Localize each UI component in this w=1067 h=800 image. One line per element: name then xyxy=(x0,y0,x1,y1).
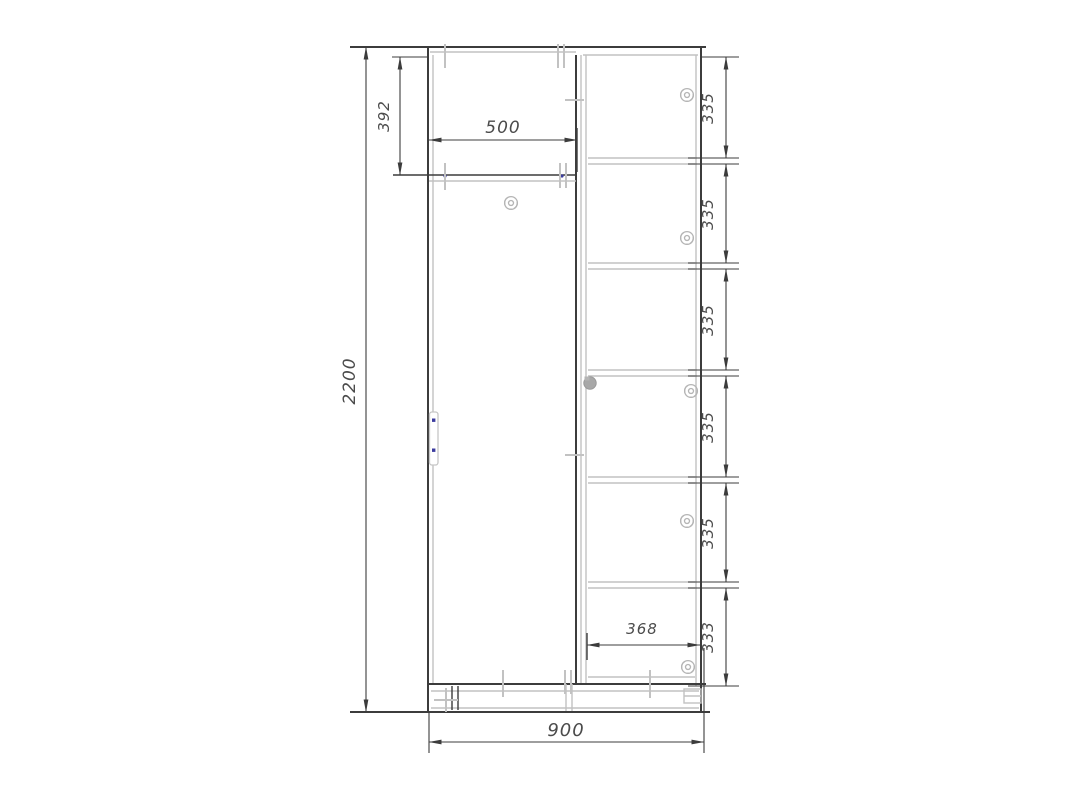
fastener-icons xyxy=(505,89,698,674)
base-plinth xyxy=(350,684,710,712)
cam-lock-fastener-icon xyxy=(681,515,694,528)
dim-label-section-1: 335 xyxy=(699,92,717,124)
drawing-canvas: 2200 392 500 335 335 335 335 335 333 xyxy=(0,0,1067,800)
dim-right-inner-width: 368 xyxy=(587,620,700,660)
dim-label-top-section: 392 xyxy=(375,100,393,132)
shelf-knob-icon xyxy=(584,377,596,390)
shelf-lines xyxy=(588,158,695,677)
dim-label-right-inner-width: 368 xyxy=(626,620,658,638)
dim-overall-height: 2200 xyxy=(340,47,366,712)
cabinet-frame xyxy=(350,47,706,712)
cam-lock-fastener-icon xyxy=(681,232,694,245)
handle-screw-dot xyxy=(432,419,435,422)
left-door xyxy=(393,174,577,465)
dim-left-door-width: 500 xyxy=(429,118,577,172)
dim-label-overall-width: 900 xyxy=(547,720,584,741)
dim-label-section-5: 335 xyxy=(699,517,717,549)
cam-lock-fastener-icon xyxy=(682,661,695,674)
dim-label-overall-height: 2200 xyxy=(340,357,360,404)
dim-label-section-3: 335 xyxy=(699,304,717,336)
dim-label-left-door-width: 500 xyxy=(485,118,520,138)
dim-label-section-2: 335 xyxy=(699,198,717,230)
wardrobe-drawing: 2200 392 500 335 335 335 335 335 333 xyxy=(0,0,1067,800)
handle-screw-dot xyxy=(432,449,435,452)
right-shelf-column xyxy=(505,89,698,677)
cam-lock-fastener-icon xyxy=(505,197,518,210)
cam-lock-fastener-icon xyxy=(681,89,694,102)
dim-label-section-4: 335 xyxy=(699,411,717,443)
dim-label-section-6: 333 xyxy=(699,621,717,653)
edge-ticks xyxy=(434,44,650,712)
door-handle xyxy=(430,412,439,465)
dim-top-section: 392 xyxy=(375,57,429,175)
